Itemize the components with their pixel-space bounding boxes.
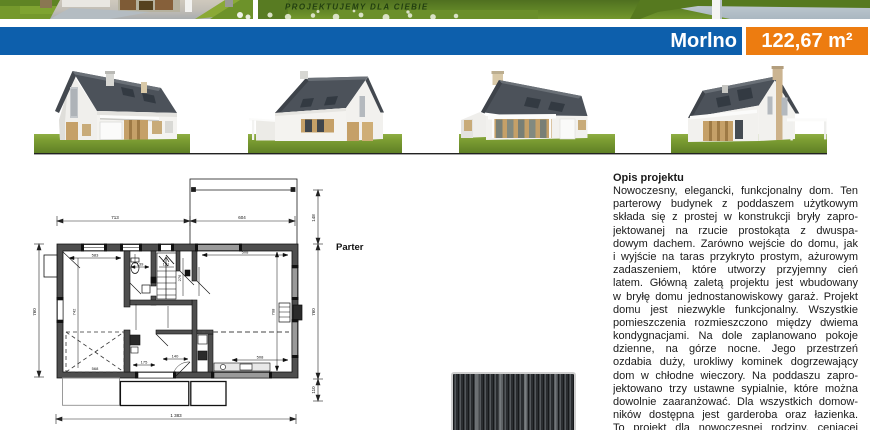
svg-text:276: 276 [177,274,182,281]
svg-text:742: 742 [72,308,77,315]
svg-text:760: 760 [311,308,316,316]
svg-text:175: 175 [141,360,148,365]
svg-text:760: 760 [32,308,37,316]
svg-text:110: 110 [311,386,316,394]
svg-text:583: 583 [92,253,99,258]
svg-text:568: 568 [92,366,99,371]
svg-text:508: 508 [242,250,249,255]
svg-text:604: 604 [238,215,246,220]
svg-text:508: 508 [257,355,264,360]
svg-text:1 383: 1 383 [170,413,182,418]
svg-text:708: 708 [271,308,276,315]
svg-text:713: 713 [111,215,119,220]
svg-text:148: 148 [311,214,316,222]
svg-text:139: 139 [137,262,144,267]
svg-text:Parter: Parter [336,242,364,253]
svg-text:121: 121 [163,262,170,267]
svg-text:140: 140 [172,354,179,359]
